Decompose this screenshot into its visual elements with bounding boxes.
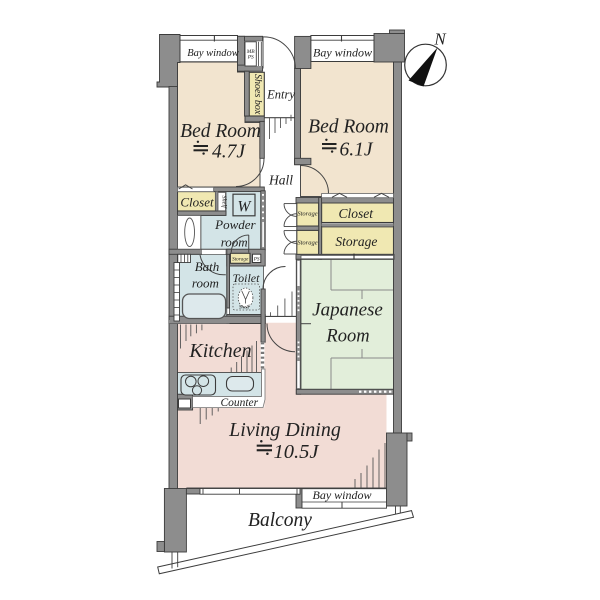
svg-text:N: N [433, 30, 447, 49]
svg-text:4.7J: 4.7J [212, 142, 246, 163]
svg-text:Storage: Storage [232, 257, 249, 263]
svg-text:6.1J: 6.1J [340, 140, 374, 161]
svg-text:Storage: Storage [335, 234, 377, 249]
svg-text:Bath: Bath [195, 259, 220, 274]
svg-text:Storage: Storage [297, 240, 317, 247]
svg-text:PS: PS [253, 256, 260, 262]
svg-text:Kitchen: Kitchen [188, 340, 251, 362]
svg-text:Hall: Hall [268, 173, 293, 188]
svg-text:room: room [192, 275, 219, 290]
svg-text:Toilet: Toilet [233, 271, 261, 285]
svg-text:PS: PS [247, 55, 254, 61]
svg-text:Shelf: Shelf [239, 306, 250, 311]
svg-text:Shelf: Shelf [221, 195, 228, 209]
svg-text:Entry: Entry [266, 88, 295, 102]
svg-text:Bay window: Bay window [187, 48, 239, 59]
svg-text:Room: Room [325, 327, 369, 347]
svg-text:Living Dining: Living Dining [228, 419, 341, 441]
svg-text:10.5J: 10.5J [274, 441, 320, 463]
svg-text:Closet: Closet [180, 195, 214, 210]
svg-text:Shoes box: Shoes box [252, 74, 263, 115]
svg-text:Storage: Storage [297, 211, 317, 218]
svg-text:Japanese: Japanese [312, 300, 383, 321]
svg-text:Closet: Closet [338, 206, 374, 221]
svg-text:W: W [238, 199, 253, 216]
svg-text:Bay window: Bay window [313, 46, 372, 60]
svg-text:Balcony: Balcony [248, 510, 312, 531]
svg-text:Bed Room: Bed Room [308, 117, 389, 138]
svg-text:Bay window: Bay window [313, 488, 372, 502]
svg-text:Counter: Counter [220, 397, 258, 409]
svg-text:room: room [221, 234, 248, 249]
svg-text:Powder: Powder [214, 217, 256, 232]
svg-text:Bed Room: Bed Room [180, 121, 261, 142]
